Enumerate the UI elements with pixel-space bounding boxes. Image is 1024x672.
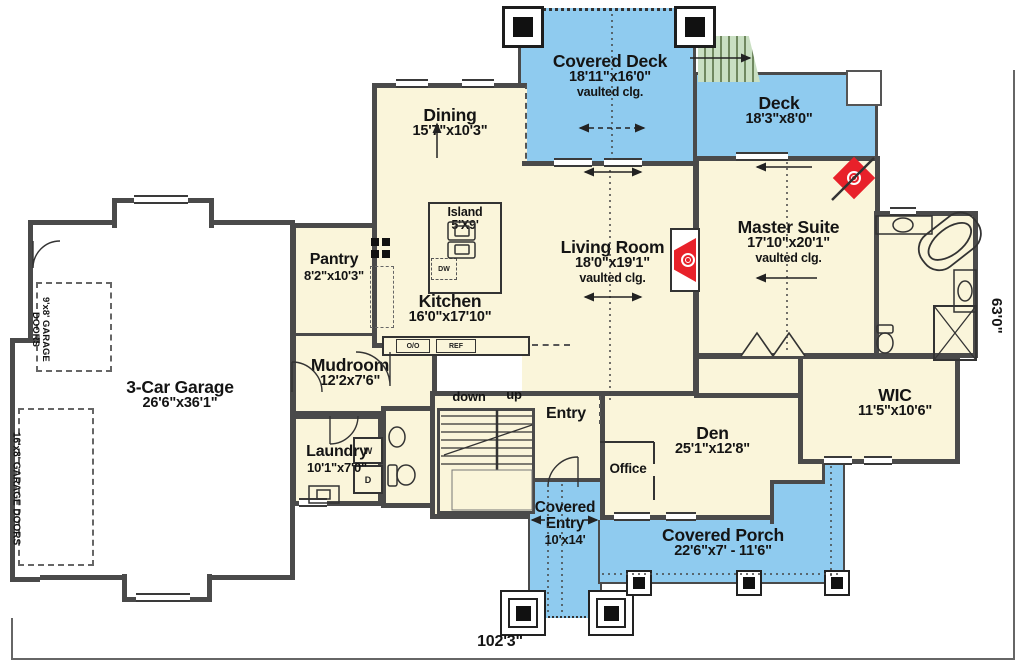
room-dims: 18'3"x8'0" [700,112,858,127]
column-trim [596,598,626,628]
room-dims: 8'2"x10'3" [292,269,376,283]
window [666,512,696,521]
garage-label: 3-Car Garage 26'6"x36'1" [98,378,262,412]
laundry-label: Laundry 10'1"x7'0" [290,444,384,474]
counter-dashed-extension [532,344,570,346]
room-dims: 10'x14' [528,533,602,547]
cooktop-burner [382,238,390,246]
garage-door-label-small: 9'x8' GARAGE DOORS [30,283,50,375]
window [890,207,916,216]
room-note: vaulted clg. [530,86,690,99]
room-name: Laundry [290,444,384,461]
covered-porch-label: Covered Porch 22'6"x7' - 11'6" [618,526,828,560]
column-core [516,606,531,621]
hall-to-master [694,354,804,398]
room-dims: 12'2x7'6" [288,374,412,389]
covered-entry-label: Covered Entry 10'x14' [528,500,602,546]
room-name: Covered Entry [528,500,602,533]
post-core [743,577,755,589]
window [864,456,892,465]
window [824,456,852,465]
garage-door-outline-double [18,408,94,566]
fireplace-ring-icon [847,171,861,185]
refrigerator: REF [436,339,476,353]
window [299,498,327,507]
post-core [831,577,843,589]
depth-dimension-line [1013,70,1015,660]
room-dims: 18'0"x19'1" [540,256,685,271]
covered-porch-step [770,480,845,524]
post-core [633,577,645,589]
room-name: Covered Porch [618,526,828,544]
room-dims: 16'0"x17'10" [380,310,520,325]
room-dims: 18'11"x16'0" [530,70,690,85]
master-suite-label: Master Suite 17'10"x20'1" vaulted clg. [706,218,871,265]
floor-plan: Island 5'X9' DW O/O REF W D 9'x8' GARAGE… [0,0,1024,672]
room-note: vaulted clg. [706,252,871,265]
entry-label: Entry [538,406,594,423]
entry-column [588,590,634,636]
sliding-door-living-deck [554,158,592,167]
room-note: vaulted clg. [540,272,685,285]
window [134,195,188,204]
room-name: Den [640,424,785,442]
sliding-door-master-deck [736,152,788,161]
room-name: Living Room [540,238,685,256]
office-label: Office [603,462,653,476]
room-name: 3-Car Garage [98,378,262,396]
living-room-label: Living Room 18'0"x19'1" vaulted clg. [540,238,685,285]
porch-post [736,570,762,596]
dining-label: Dining 15'7"x10'3" [380,106,520,140]
room-name: Covered Deck [530,52,690,70]
room-name: Office [603,462,653,476]
stairwell [437,408,535,514]
room-dims: 11'5"x10'6" [830,404,960,419]
sliding-door-living-deck [604,158,642,167]
stairs-up-label: up [498,388,530,402]
room-name: Pantry [292,252,376,269]
kitchen-label: Kitchen 16'0"x17'10" [380,292,520,326]
garage-door-label-large: 16'x8' GARAGE DOORS [10,410,21,568]
room-name: Master Suite [706,218,871,236]
overall-width-dimension: 102'3" [440,634,560,651]
deck-post [502,6,544,48]
room-dims: 26'6"x36'1" [98,396,262,411]
den-label: Den 25'1"x12'8" [640,424,785,458]
room-name: WIC [830,386,960,404]
island-label: Island 5'X9' [428,206,502,232]
room-name: Entry [538,406,594,423]
window [614,512,650,521]
window [396,79,428,88]
wic-label: WIC 11'5"x10'6" [830,386,960,420]
mudroom-label: Mudroom 12'2x7'6" [288,356,412,390]
porch-post [626,570,652,596]
master-bath-room [874,211,978,358]
porch-post [824,570,850,596]
overall-depth-dimension: 63'0" [988,278,1004,354]
covered-deck-label: Covered Deck 18'11"x16'0" vaulted clg. [530,52,690,99]
width-dimension-tick [11,618,13,660]
double-oven: O/O [396,339,430,353]
deck-label: Deck 18'3"x8'0" [700,94,858,128]
cooktop-burner [382,250,390,258]
room-dims: 17'10"x20'1" [706,236,871,251]
room-name: Kitchen [380,292,520,310]
room-name: Dining [380,106,520,124]
room-dims: 22'6"x7' - 11'6" [618,544,828,559]
pantry-label: Pantry 8'2"x10'3" [292,252,376,282]
window [136,593,190,602]
column-trim [508,598,538,628]
dishwasher: DW [431,258,457,280]
deck-post [674,6,716,48]
width-dimension-line [12,658,1014,660]
column-core [604,606,619,621]
window [462,79,494,88]
room-dims: 25'1"x12'8" [640,442,785,457]
room-dims: 10'1"x7'0" [290,461,384,475]
stairs-down-label: down [444,390,494,404]
room-name: Mudroom [288,356,412,374]
island-dims: 5'X9' [428,219,502,232]
cooktop-burner [371,238,379,246]
covered-porch-strip [822,462,845,484]
post-core [685,17,705,37]
entry-column [500,590,546,636]
post-core [513,17,533,37]
room-dims: 15'7"x10'3" [380,124,520,139]
room-name: Deck [700,94,858,112]
